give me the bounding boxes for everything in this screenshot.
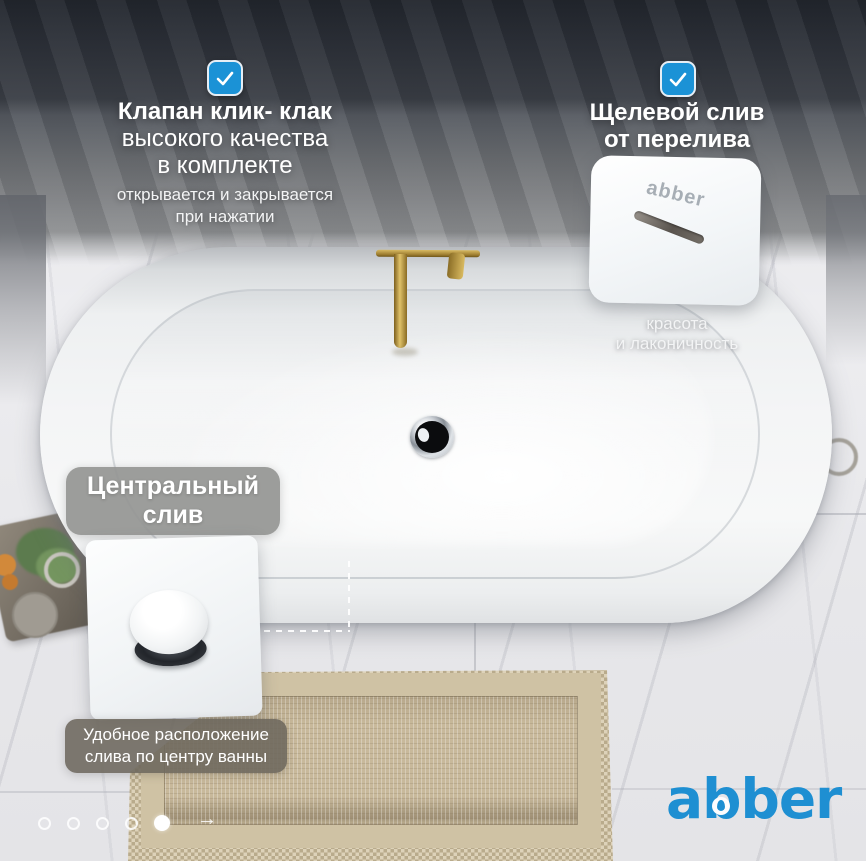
carousel-dot[interactable] xyxy=(125,817,138,830)
subtitle-line: открывается и закрывается xyxy=(35,184,415,206)
central-drain-label: Центральный слив xyxy=(66,467,280,535)
central-drain xyxy=(410,416,454,458)
tile-seam xyxy=(0,791,130,793)
checkbox-icon xyxy=(207,60,243,96)
caption-line: красота xyxy=(527,314,827,334)
central-drain-photo-card xyxy=(85,535,262,720)
feature-subtitle-click-clack: открывается и закрывается при нажатии xyxy=(35,184,415,228)
label-line: Центральный xyxy=(66,472,280,501)
abber-logo: abber xyxy=(666,772,841,827)
glass xyxy=(44,552,80,588)
tile-seam xyxy=(474,620,476,674)
title-line: Щелевой слив xyxy=(527,99,827,126)
title-line: Клапан клик- клак xyxy=(35,98,415,125)
dimension-dash-vertical xyxy=(348,561,350,632)
overflow-slot xyxy=(633,210,705,245)
faucet-shadow xyxy=(392,348,418,356)
title-line: высокого качества xyxy=(35,125,415,152)
carousel-dots xyxy=(38,814,170,832)
central-drain-caption: Удобное расположение слива по центру ван… xyxy=(65,719,287,773)
overflow-drain-photo-card: abber xyxy=(588,155,761,306)
carousel-dot[interactable] xyxy=(67,817,80,830)
carousel-dot[interactable] xyxy=(38,817,51,830)
carousel-next-arrow[interactable]: → xyxy=(197,808,217,831)
feature-title-overflow: Щелевой слив от перелива xyxy=(527,99,827,153)
ceiling-shadow-right xyxy=(826,195,866,365)
checkmark-icon xyxy=(213,66,237,90)
logo-water-drop-icon xyxy=(712,797,730,815)
feature-caption-overflow: красота и лаконичность xyxy=(527,314,827,354)
title-line: в комплекте xyxy=(35,152,415,179)
carousel-dot[interactable] xyxy=(96,817,109,830)
title-line: от перелива xyxy=(527,126,827,153)
carousel-dot[interactable] xyxy=(154,815,170,831)
faucet-spout xyxy=(394,254,407,348)
caption-line: Удобное расположение xyxy=(73,724,279,746)
checkbox-icon xyxy=(660,61,696,97)
caption-line: и лаконичность xyxy=(527,334,827,354)
caption-line: слива по центру ванны xyxy=(73,746,279,768)
subtitle-line: при нажатии xyxy=(35,206,415,228)
faucet-handle xyxy=(447,252,466,280)
jar xyxy=(12,592,58,638)
product-slide: Клапан клик- клак высокого качества в ко… xyxy=(0,0,866,861)
checkmark-icon xyxy=(666,67,690,91)
label-line: слив xyxy=(66,501,280,530)
feature-title-click-clack: Клапан клик- клак высокого качества в ко… xyxy=(35,98,415,179)
orange-fruit xyxy=(2,574,18,590)
drain-hole xyxy=(415,421,449,453)
dimension-dash-horizontal xyxy=(252,630,350,632)
